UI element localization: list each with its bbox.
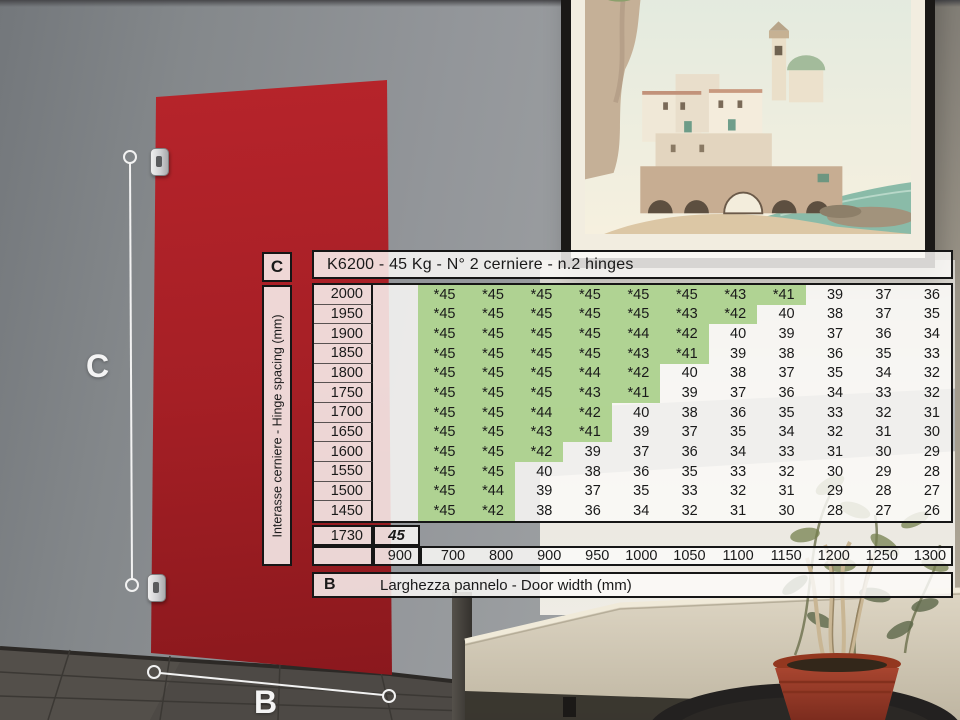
table-cell: *43 bbox=[563, 383, 611, 403]
axis-width-value: 800 bbox=[470, 548, 518, 564]
table-cell: 40 bbox=[660, 364, 708, 384]
table-cell: 37 bbox=[563, 482, 611, 502]
scene: C B C Interasse cerniere - Hinge spacing… bbox=[0, 0, 960, 720]
table-cell: 39 bbox=[515, 482, 563, 502]
table-cell: 34 bbox=[612, 501, 660, 521]
axis-width-value: 1050 bbox=[662, 548, 710, 564]
table-cell: *45 bbox=[466, 462, 514, 482]
table-cell: 37 bbox=[612, 442, 660, 462]
table-cell: *45 bbox=[515, 344, 563, 364]
table-cell: 37 bbox=[806, 324, 854, 344]
row-label: 1600 bbox=[314, 442, 373, 462]
table-cell: 26 bbox=[903, 501, 951, 521]
table-cell: 28 bbox=[854, 482, 902, 502]
row-label: 1700 bbox=[314, 403, 373, 423]
axis-width-value: 1200 bbox=[807, 548, 855, 564]
table-cell: 39 bbox=[563, 442, 611, 462]
table-cell: *41 bbox=[563, 423, 611, 443]
spacer-cell bbox=[373, 482, 418, 502]
table-cell: 27 bbox=[903, 482, 951, 502]
table-cell: 36 bbox=[660, 442, 708, 462]
axis-door-widths: 7008009009501000105011001150120012501300 bbox=[420, 546, 953, 566]
table-cell: *41 bbox=[612, 383, 660, 403]
table-cell: 34 bbox=[903, 324, 951, 344]
spacer-cell bbox=[373, 324, 418, 344]
left-axis-label: Interasse cerniere - Hinge spacing (mm) bbox=[262, 285, 292, 566]
table-cell: 35 bbox=[903, 305, 951, 325]
table-cell: *44 bbox=[466, 482, 514, 502]
table-cell: 38 bbox=[757, 344, 805, 364]
table-cell: 34 bbox=[757, 423, 805, 443]
table-cell: *45 bbox=[466, 324, 514, 344]
table-cell: *44 bbox=[563, 364, 611, 384]
spacer-cell bbox=[373, 305, 418, 325]
axis-width-value: 1100 bbox=[711, 548, 759, 564]
table-cell: 36 bbox=[612, 462, 660, 482]
spacer-cell bbox=[373, 462, 418, 482]
spacer-cell bbox=[373, 364, 418, 384]
table-cell: 37 bbox=[709, 383, 757, 403]
table-cell: *45 bbox=[515, 364, 563, 384]
table-cell: 30 bbox=[757, 501, 805, 521]
door-hinge-bottom bbox=[147, 574, 166, 602]
spacer-cell bbox=[373, 403, 418, 423]
table-cell: 37 bbox=[757, 364, 805, 384]
table-cell: 38 bbox=[660, 403, 708, 423]
table-cell: 40 bbox=[757, 305, 805, 325]
table-cell: *43 bbox=[612, 344, 660, 364]
hinge-spec-table: C Interasse cerniere - Hinge spacing (mm… bbox=[260, 248, 960, 604]
special-row-value: 45 bbox=[373, 525, 420, 546]
table-cell: *41 bbox=[757, 285, 805, 305]
table-cell: *45 bbox=[563, 324, 611, 344]
table-cell: *45 bbox=[418, 364, 466, 384]
table-cell: *45 bbox=[660, 285, 708, 305]
table-cell: 36 bbox=[806, 344, 854, 364]
left-axis-letter: C bbox=[262, 252, 292, 282]
table-cell: 32 bbox=[709, 482, 757, 502]
row-label: 1500 bbox=[314, 482, 373, 502]
row-label: 1450 bbox=[314, 501, 373, 521]
table-cell: *45 bbox=[515, 383, 563, 403]
spacer-cell bbox=[373, 285, 418, 305]
table-cell: 30 bbox=[854, 442, 902, 462]
row-label: 1750 bbox=[314, 383, 373, 403]
table-cell: *45 bbox=[466, 403, 514, 423]
table-cell: *45 bbox=[466, 383, 514, 403]
table-cell: *45 bbox=[418, 423, 466, 443]
table-cell: *45 bbox=[418, 501, 466, 521]
table-cell: 32 bbox=[660, 501, 708, 521]
table-cell: 39 bbox=[612, 423, 660, 443]
table-cell: *45 bbox=[418, 403, 466, 423]
spacer-cell bbox=[373, 383, 418, 403]
table-cell: *42 bbox=[709, 305, 757, 325]
table-cell: 38 bbox=[709, 364, 757, 384]
table-cell: 32 bbox=[757, 462, 805, 482]
axis-width-value: 950 bbox=[566, 548, 614, 564]
table-cell: 31 bbox=[757, 482, 805, 502]
table-cell: 35 bbox=[612, 482, 660, 502]
row-label: 1650 bbox=[314, 423, 373, 443]
axis-width-value: 1250 bbox=[855, 548, 903, 564]
table-cell: 38 bbox=[515, 501, 563, 521]
table-cell: *45 bbox=[563, 305, 611, 325]
table-cell: *45 bbox=[466, 305, 514, 325]
dim-label-hinge-spacing: C bbox=[86, 348, 109, 385]
spacer-cell bbox=[373, 344, 418, 364]
axis-empty-cell bbox=[312, 546, 373, 566]
table-cell: *42 bbox=[466, 501, 514, 521]
coastal-painting bbox=[585, 0, 911, 234]
spacer-cell bbox=[373, 442, 418, 462]
table-cell: 32 bbox=[903, 364, 951, 384]
table-cell: *42 bbox=[515, 442, 563, 462]
table-cell: *44 bbox=[515, 403, 563, 423]
table-cell: 33 bbox=[757, 442, 805, 462]
table-cell: 36 bbox=[709, 403, 757, 423]
table-cell: 31 bbox=[806, 442, 854, 462]
table-cell: *45 bbox=[418, 285, 466, 305]
table-cell: *45 bbox=[612, 305, 660, 325]
table-cell: *45 bbox=[418, 344, 466, 364]
table-cell: *45 bbox=[466, 423, 514, 443]
table-cell: 35 bbox=[660, 462, 708, 482]
table-cell: 34 bbox=[854, 364, 902, 384]
table-cell: 39 bbox=[757, 324, 805, 344]
special-row-label: 1730 bbox=[312, 525, 373, 546]
axis-width-value: 900 bbox=[518, 548, 566, 564]
table-cell: 35 bbox=[854, 344, 902, 364]
table-cell: 35 bbox=[709, 423, 757, 443]
table-cell: *45 bbox=[466, 442, 514, 462]
table-cell: *45 bbox=[515, 285, 563, 305]
door-hinge-top bbox=[150, 148, 169, 176]
table-cell: *45 bbox=[466, 344, 514, 364]
table-cell: 39 bbox=[709, 344, 757, 364]
table-cell: *42 bbox=[563, 403, 611, 423]
bottom-axis-letter: B bbox=[314, 576, 380, 594]
table-cell: *42 bbox=[660, 324, 708, 344]
table-cell: 30 bbox=[806, 462, 854, 482]
table-title: K6200 - 45 Kg - N° 2 cerniere - n.2 hing… bbox=[312, 250, 953, 279]
table-cell: 36 bbox=[903, 285, 951, 305]
table-cell: 30 bbox=[903, 423, 951, 443]
table-cell: 40 bbox=[709, 324, 757, 344]
table-cell: 37 bbox=[660, 423, 708, 443]
axis-width-value: 1000 bbox=[614, 548, 662, 564]
table-footer: B Larghezza pannelo - Door width (mm) bbox=[312, 572, 953, 598]
table-cell: *45 bbox=[418, 383, 466, 403]
spacer-cell bbox=[373, 501, 418, 521]
table-cell: *45 bbox=[418, 482, 466, 502]
table-cell: *45 bbox=[515, 324, 563, 344]
table-cell: *45 bbox=[612, 285, 660, 305]
table-cell: 36 bbox=[563, 501, 611, 521]
table-cell: *45 bbox=[515, 305, 563, 325]
table-cell: *44 bbox=[612, 324, 660, 344]
table-cell: 29 bbox=[806, 482, 854, 502]
bottom-axis-label: Larghezza pannelo - Door width (mm) bbox=[380, 577, 632, 594]
table-cell: 32 bbox=[854, 403, 902, 423]
row-label: 1850 bbox=[314, 344, 373, 364]
table-cell: *45 bbox=[466, 364, 514, 384]
table-cell: 31 bbox=[903, 403, 951, 423]
table-cell: *45 bbox=[466, 285, 514, 305]
table-cell: *42 bbox=[612, 364, 660, 384]
table-cell: 35 bbox=[806, 364, 854, 384]
table-cell: 31 bbox=[709, 501, 757, 521]
table-cell: *45 bbox=[418, 324, 466, 344]
table-cell: *45 bbox=[418, 305, 466, 325]
wall-art-frame bbox=[561, 0, 935, 268]
row-label: 1550 bbox=[314, 462, 373, 482]
table-cell: 33 bbox=[660, 482, 708, 502]
table-cell: *45 bbox=[418, 442, 466, 462]
table-cell: 37 bbox=[854, 305, 902, 325]
row-label: 1800 bbox=[314, 364, 373, 384]
table-cell: 39 bbox=[660, 383, 708, 403]
axis-width-value: 700 bbox=[422, 548, 470, 564]
row-label: 1950 bbox=[314, 305, 373, 325]
table-cell: *45 bbox=[418, 462, 466, 482]
axis-width-value: 1150 bbox=[759, 548, 807, 564]
table-cell: 36 bbox=[757, 383, 805, 403]
axis-width-value: 1300 bbox=[903, 548, 951, 564]
table-cell: 28 bbox=[903, 462, 951, 482]
table-cell: 28 bbox=[806, 501, 854, 521]
table-cell: 40 bbox=[612, 403, 660, 423]
data-grid: 2000*45*45*45*45*45*45*43*413937361950*4… bbox=[312, 283, 953, 523]
table-cell: *45 bbox=[563, 285, 611, 305]
spacer-cell bbox=[373, 423, 418, 443]
table-cell: *43 bbox=[709, 285, 757, 305]
table-cell: *41 bbox=[660, 344, 708, 364]
table-cell: 37 bbox=[854, 285, 902, 305]
table-cell: 38 bbox=[563, 462, 611, 482]
table-cell: *43 bbox=[660, 305, 708, 325]
dim-label-door-width: B bbox=[254, 684, 277, 720]
table-cell: 31 bbox=[854, 423, 902, 443]
table-cell: *43 bbox=[515, 423, 563, 443]
row-label: 1900 bbox=[314, 324, 373, 344]
table-cell: 35 bbox=[757, 403, 805, 423]
table-cell: 33 bbox=[854, 383, 902, 403]
row-label: 2000 bbox=[314, 285, 373, 305]
table-cell: 32 bbox=[806, 423, 854, 443]
table-cell: *45 bbox=[563, 344, 611, 364]
table-cell: 33 bbox=[709, 462, 757, 482]
table-cell: 40 bbox=[515, 462, 563, 482]
table-cell: 34 bbox=[709, 442, 757, 462]
axis-special-width: 900 bbox=[373, 546, 420, 566]
table-cell: 36 bbox=[854, 324, 902, 344]
table-cell: 33 bbox=[806, 403, 854, 423]
table-cell: 38 bbox=[806, 305, 854, 325]
table-cell: 32 bbox=[903, 383, 951, 403]
table-cell: 29 bbox=[903, 442, 951, 462]
table-cell: 34 bbox=[806, 383, 854, 403]
table-cell: 33 bbox=[903, 344, 951, 364]
table-cell: 27 bbox=[854, 501, 902, 521]
table-cell: 29 bbox=[854, 462, 902, 482]
table-cell: 39 bbox=[806, 285, 854, 305]
